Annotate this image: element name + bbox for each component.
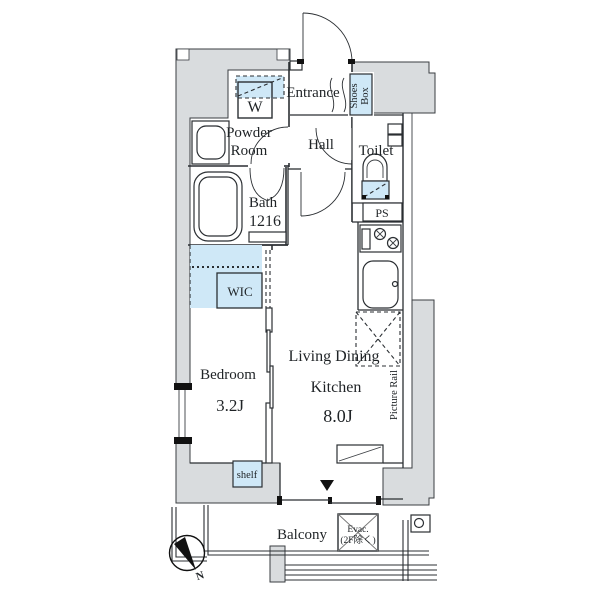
label-ldk-1: Living Dining <box>288 348 379 365</box>
door-jamb-right <box>348 59 355 64</box>
wall-bedroom-east-lower <box>266 403 272 463</box>
floorplan-image: Entrance Shoes Box W Powder Room Hall To… <box>0 0 604 601</box>
compass-needle <box>174 537 196 570</box>
kitchen-sink <box>363 261 398 308</box>
label-powder-2: Room <box>231 143 268 159</box>
entry-direction-marker <box>320 480 334 491</box>
wall-bedroom-east-upper <box>266 308 272 332</box>
label-bedroom-size: 3.2J <box>216 396 244 415</box>
label-compass-north: N <box>194 569 205 583</box>
wall-notch-left <box>177 49 189 60</box>
label-bedroom: Bedroom <box>200 367 256 383</box>
bedroom-window <box>174 383 192 444</box>
label-bath-size: 1216 <box>249 213 281 230</box>
label-washer: W <box>247 99 263 116</box>
label-balcony: Balcony <box>277 527 327 543</box>
label-shoesbox-2: Box <box>360 87 371 105</box>
label-bath: Bath <box>249 195 278 211</box>
wall-notch-right <box>277 49 289 60</box>
label-picture-rail: Picture Rail <box>389 370 400 420</box>
label-hall: Hall <box>308 137 334 153</box>
door-jamb-left <box>297 59 304 64</box>
label-entrance: Entrance <box>286 85 340 101</box>
sliding-door-panel-2 <box>270 366 273 408</box>
balcony-railing <box>172 505 437 581</box>
label-shelf: shelf <box>237 470 258 481</box>
label-powder-1: Powder <box>226 125 272 141</box>
label-wic: WIC <box>227 284 252 299</box>
powder-sink <box>192 121 229 164</box>
break-line-2 <box>342 78 345 112</box>
label-toilet: Toilet <box>359 143 395 159</box>
label-evac-2: (2F除く) <box>340 534 375 546</box>
bath-counter <box>249 232 286 242</box>
floorplan-svg: Entrance Shoes Box W Powder Room Hall To… <box>0 0 604 601</box>
label-evac-1: Evac. <box>347 525 368 535</box>
label-ps: PS <box>375 206 388 220</box>
ldk-door-arc <box>301 172 345 216</box>
label-shoesbox-1: Shoes <box>349 83 360 108</box>
label-ldk-size: 8.0J <box>323 406 353 426</box>
ldk-counter <box>337 445 383 463</box>
label-ldk-2: Kitchen <box>311 379 362 396</box>
drain-circle <box>415 519 424 528</box>
compass <box>170 536 205 571</box>
kitchen-stove <box>360 225 401 252</box>
toilet-cabinet-top <box>388 124 402 134</box>
